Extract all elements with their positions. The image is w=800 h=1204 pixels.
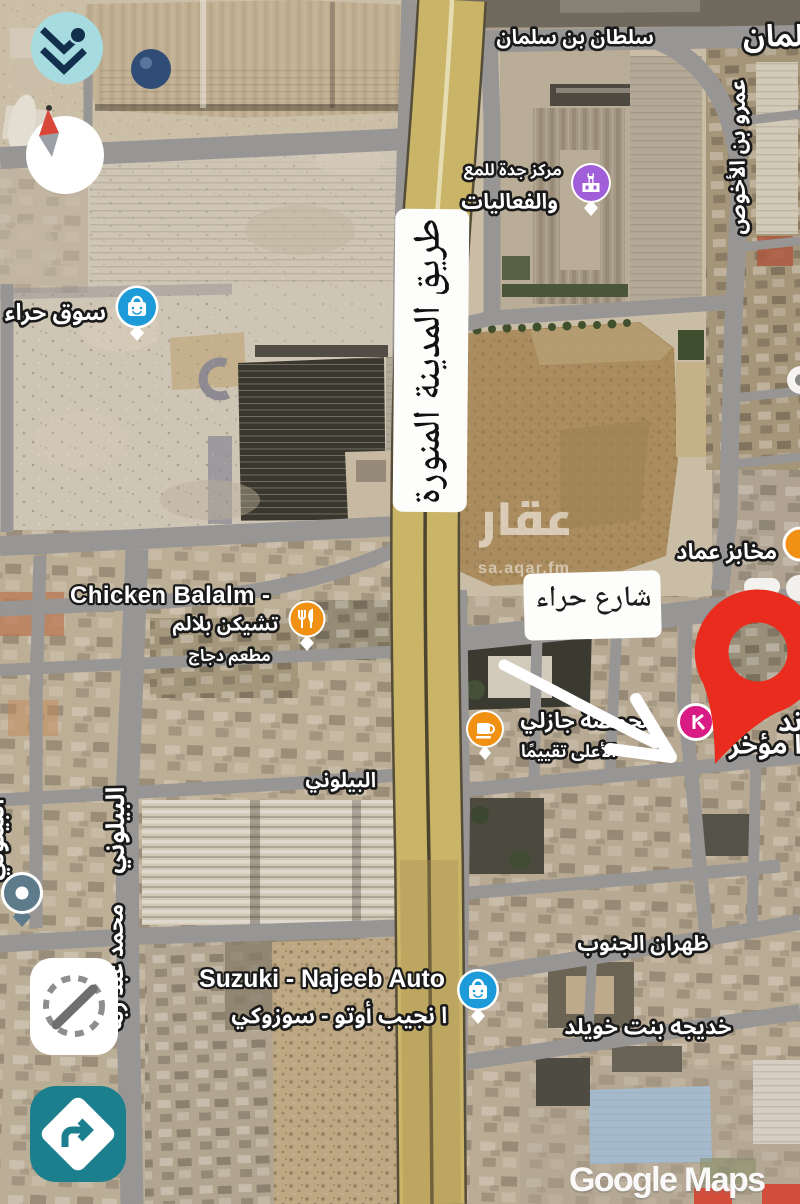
svg-text:Chicken Balalm -: Chicken Balalm - <box>70 582 270 609</box>
svg-text:Suzuki - Najeeb Auto: Suzuki - Najeeb Auto <box>199 965 445 993</box>
svg-text:Google Maps: Google Maps <box>569 1161 766 1199</box>
svg-text:sa.aqar.fm: sa.aqar.fm <box>478 560 569 577</box>
